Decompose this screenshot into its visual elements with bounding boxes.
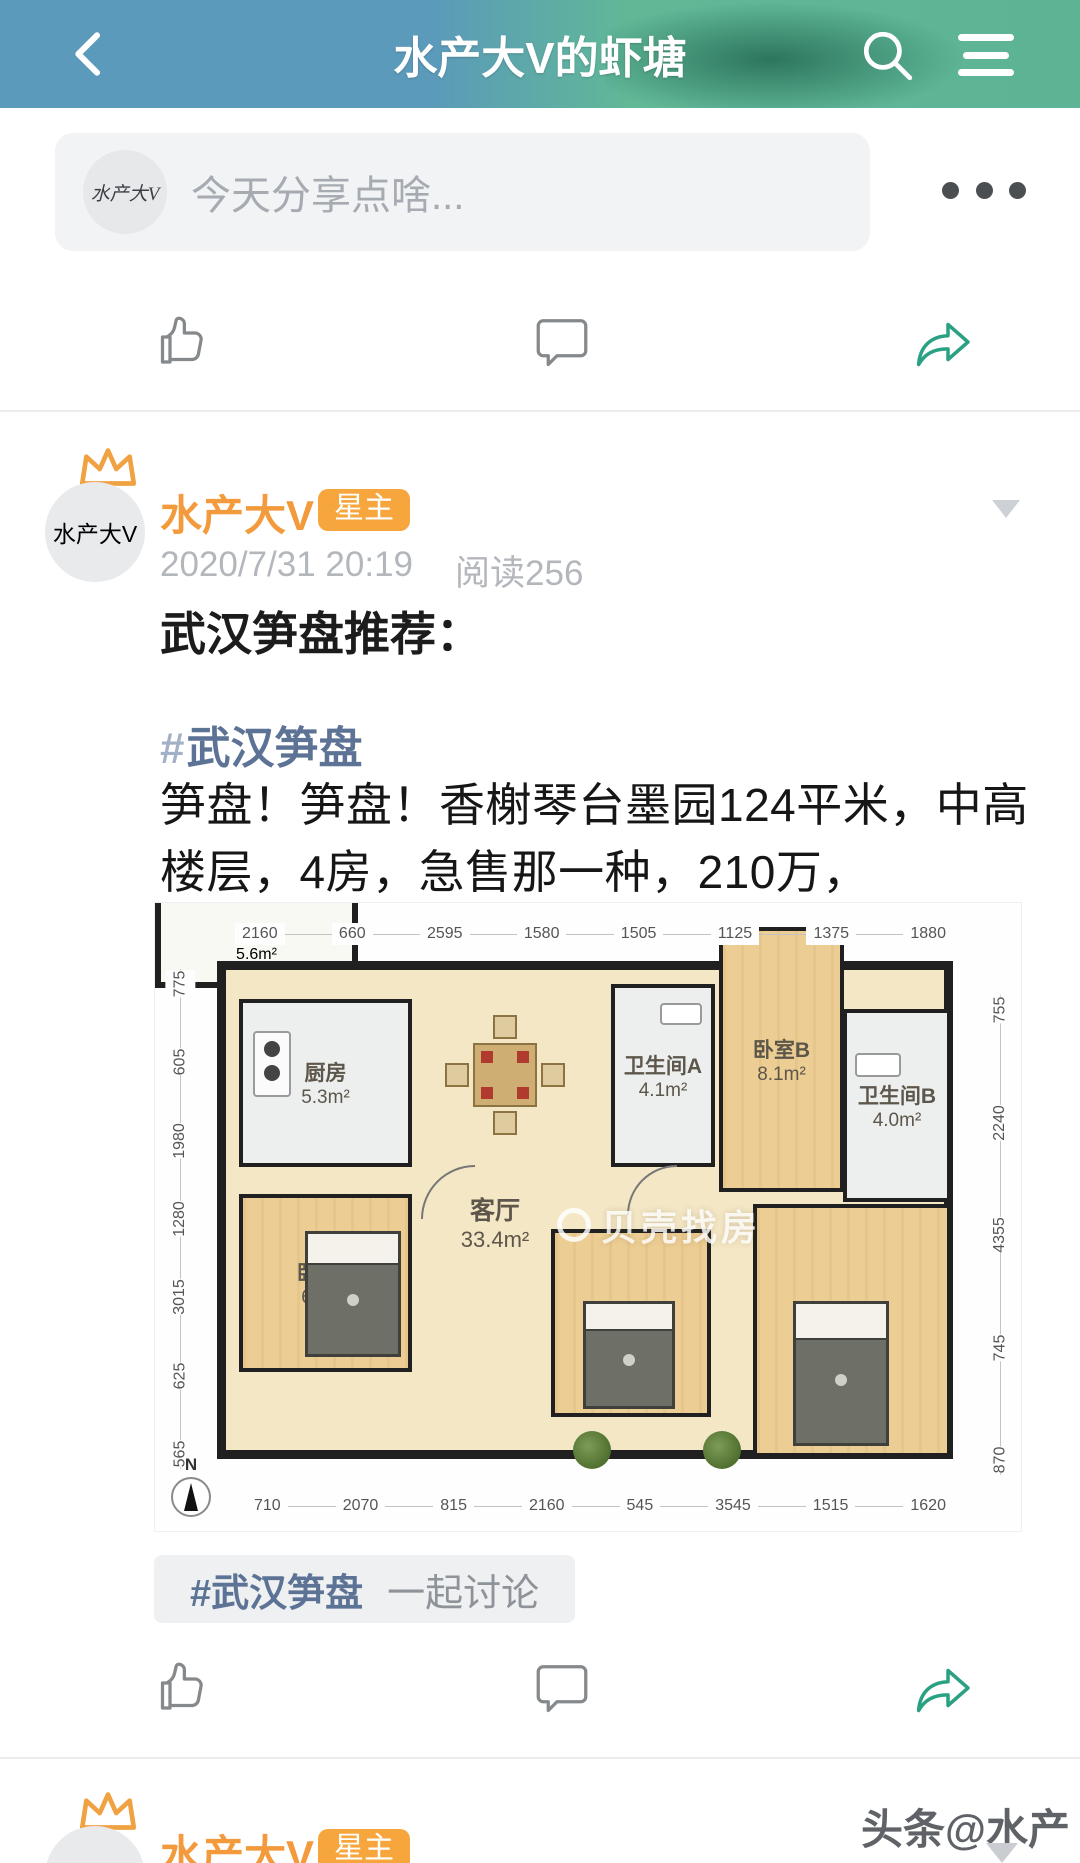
room-bathroom-b: 卫生间B 4.0m²: [847, 1013, 947, 1198]
dimension-label: 2595: [420, 923, 470, 945]
comment-button[interactable]: [532, 1658, 592, 1718]
beike-watermark: 贝壳找房: [557, 1199, 761, 1251]
app-header: 水产大V的虾塘: [0, 0, 1080, 108]
post-title: 武汉笋盘推荐：: [160, 598, 482, 664]
bed-icon: [793, 1301, 889, 1446]
post-author-name[interactable]: 水产大V: [160, 1822, 314, 1863]
dimension-label: 2160: [522, 1495, 572, 1517]
dimension-label: 755: [985, 997, 1015, 1024]
dimension-label: 3545: [708, 1495, 758, 1517]
dimension-label: 745: [985, 1334, 1015, 1361]
share-arrow-icon: [913, 1658, 973, 1718]
dimension-label: 1280: [165, 1201, 195, 1237]
post-read-count: 阅读256: [455, 545, 583, 596]
dimension-label: 545: [620, 1495, 661, 1517]
post-composer[interactable]: 水产大V 今天分享点啥...: [55, 133, 870, 251]
avatar-calligraphy: 水产大V: [53, 515, 137, 549]
menu-button[interactable]: [958, 34, 1014, 76]
back-button[interactable]: [62, 26, 118, 82]
dimension-label: 815: [433, 1495, 474, 1517]
floorplan-image[interactable]: 厨房 5.3m² 卫生间A 4.1m² 卧室B 8.1m² 卫生间B 4.0m²…: [154, 902, 1022, 1532]
stove-icon: [253, 1031, 291, 1097]
app-screen: 水产大V的虾塘 水产大V 今天分享点啥...: [0, 0, 1080, 1863]
dining-table-icon: [473, 1043, 537, 1107]
dimension-label: 660: [332, 923, 373, 945]
bed-icon: [583, 1301, 675, 1409]
dimension-label: 1620: [903, 1495, 953, 1517]
dimension-label: 605: [165, 1049, 195, 1076]
dimensions-bottom: 71020708152160545354515151620: [247, 1495, 953, 1517]
compass-icon: N: [169, 1455, 213, 1517]
dimension-label: 3015: [165, 1280, 195, 1316]
watermark-ring-icon: [557, 1208, 591, 1242]
comment-bubble-icon: [532, 312, 592, 372]
post-author-avatar[interactable]: 水产大V: [45, 482, 145, 582]
dimension-label: 710: [247, 1495, 288, 1517]
like-button[interactable]: [150, 1658, 210, 1718]
comment-button[interactable]: [532, 312, 592, 372]
post-meta: 2020/7/31 20:19 阅读256: [160, 545, 583, 596]
section-divider: [0, 1757, 1080, 1759]
dimension-label: 1505: [614, 923, 664, 945]
sink-icon: [855, 1053, 901, 1077]
dimension-label: 1515: [806, 1495, 856, 1517]
topic-suffix: 一起讨论: [387, 1562, 539, 1617]
dot-icon: [942, 182, 959, 199]
dimension-label: 2070: [336, 1495, 386, 1517]
chair-icon: [493, 1111, 517, 1135]
dimension-label: 1375: [806, 923, 856, 945]
dimensions-left: 775605198012803015625565: [165, 969, 195, 1469]
back-chevron-icon: [62, 26, 118, 82]
post-collapse-icon[interactable]: [992, 500, 1020, 518]
share-button[interactable]: [913, 312, 973, 372]
toutiao-watermark: 头条@水产大V: [820, 1796, 1070, 1863]
post-hashtag[interactable]: #武汉笋盘: [160, 712, 362, 776]
dimensions-right: 75522404355745870: [985, 995, 1015, 1475]
post-action-row: [0, 1658, 1080, 1718]
dimension-label: 625: [165, 1362, 195, 1389]
section-divider: [0, 410, 1080, 412]
comment-bubble-icon: [532, 1658, 592, 1718]
avatar-calligraphy: 水产大V: [91, 179, 160, 206]
plant-icon: [703, 1431, 741, 1469]
topic-hashtag: #武汉笋盘: [190, 1562, 363, 1617]
dimensions-top: 2160660259515801505112513751880: [235, 923, 953, 945]
hash-mark: #: [160, 724, 184, 773]
composer-avatar[interactable]: 水产大V: [83, 150, 167, 234]
composer-action-row: [0, 312, 1080, 372]
room-bedroom-b: 卧室B 8.1m²: [723, 931, 840, 1188]
search-icon: [858, 26, 916, 84]
more-options-button[interactable]: [942, 182, 1026, 199]
share-button[interactable]: [913, 1658, 973, 1718]
dimension-label: 870: [985, 1447, 1015, 1474]
composer-input[interactable]: 今天分享点啥...: [191, 133, 464, 251]
dimension-label: 1880: [903, 923, 953, 945]
thumbs-up-icon: [150, 1658, 210, 1718]
search-button[interactable]: [858, 26, 916, 84]
dimension-label: 2240: [985, 1105, 1015, 1141]
owner-badge: 星主: [318, 489, 410, 531]
chair-icon: [445, 1063, 469, 1087]
dimension-label: 2160: [235, 923, 285, 945]
bed-icon: [305, 1231, 401, 1357]
dimension-label: 1580: [517, 923, 567, 945]
collapse-triangle-icon: [986, 1843, 1018, 1863]
owner-badge: 星主: [318, 1829, 410, 1863]
topic-tag-bar[interactable]: #武汉笋盘 一起讨论: [154, 1555, 575, 1623]
post-body: 笋盘！笋盘！香榭琴台墨园124平米，中高楼层，4房，急售那一种，210万，: [160, 772, 1044, 906]
plant-icon: [573, 1431, 611, 1469]
post-author-name[interactable]: 水产大V: [160, 482, 314, 543]
sink-icon: [660, 1003, 702, 1025]
page-title: 水产大V的虾塘: [0, 0, 1080, 108]
dimension-label: 1980: [165, 1123, 195, 1159]
avatar-calligraphy: 水产大V: [53, 1859, 137, 1863]
chair-icon: [493, 1015, 517, 1039]
share-arrow-icon: [913, 312, 973, 372]
menu-icon: [958, 34, 1014, 41]
dimension-label: 775: [165, 971, 195, 998]
dimension-label: 4355: [985, 1217, 1015, 1253]
post-datetime: 2020/7/31 20:19: [160, 545, 413, 596]
dimension-label: 1125: [711, 923, 759, 945]
chair-icon: [541, 1063, 565, 1087]
like-button[interactable]: [150, 312, 210, 372]
thumbs-up-icon: [150, 312, 210, 372]
